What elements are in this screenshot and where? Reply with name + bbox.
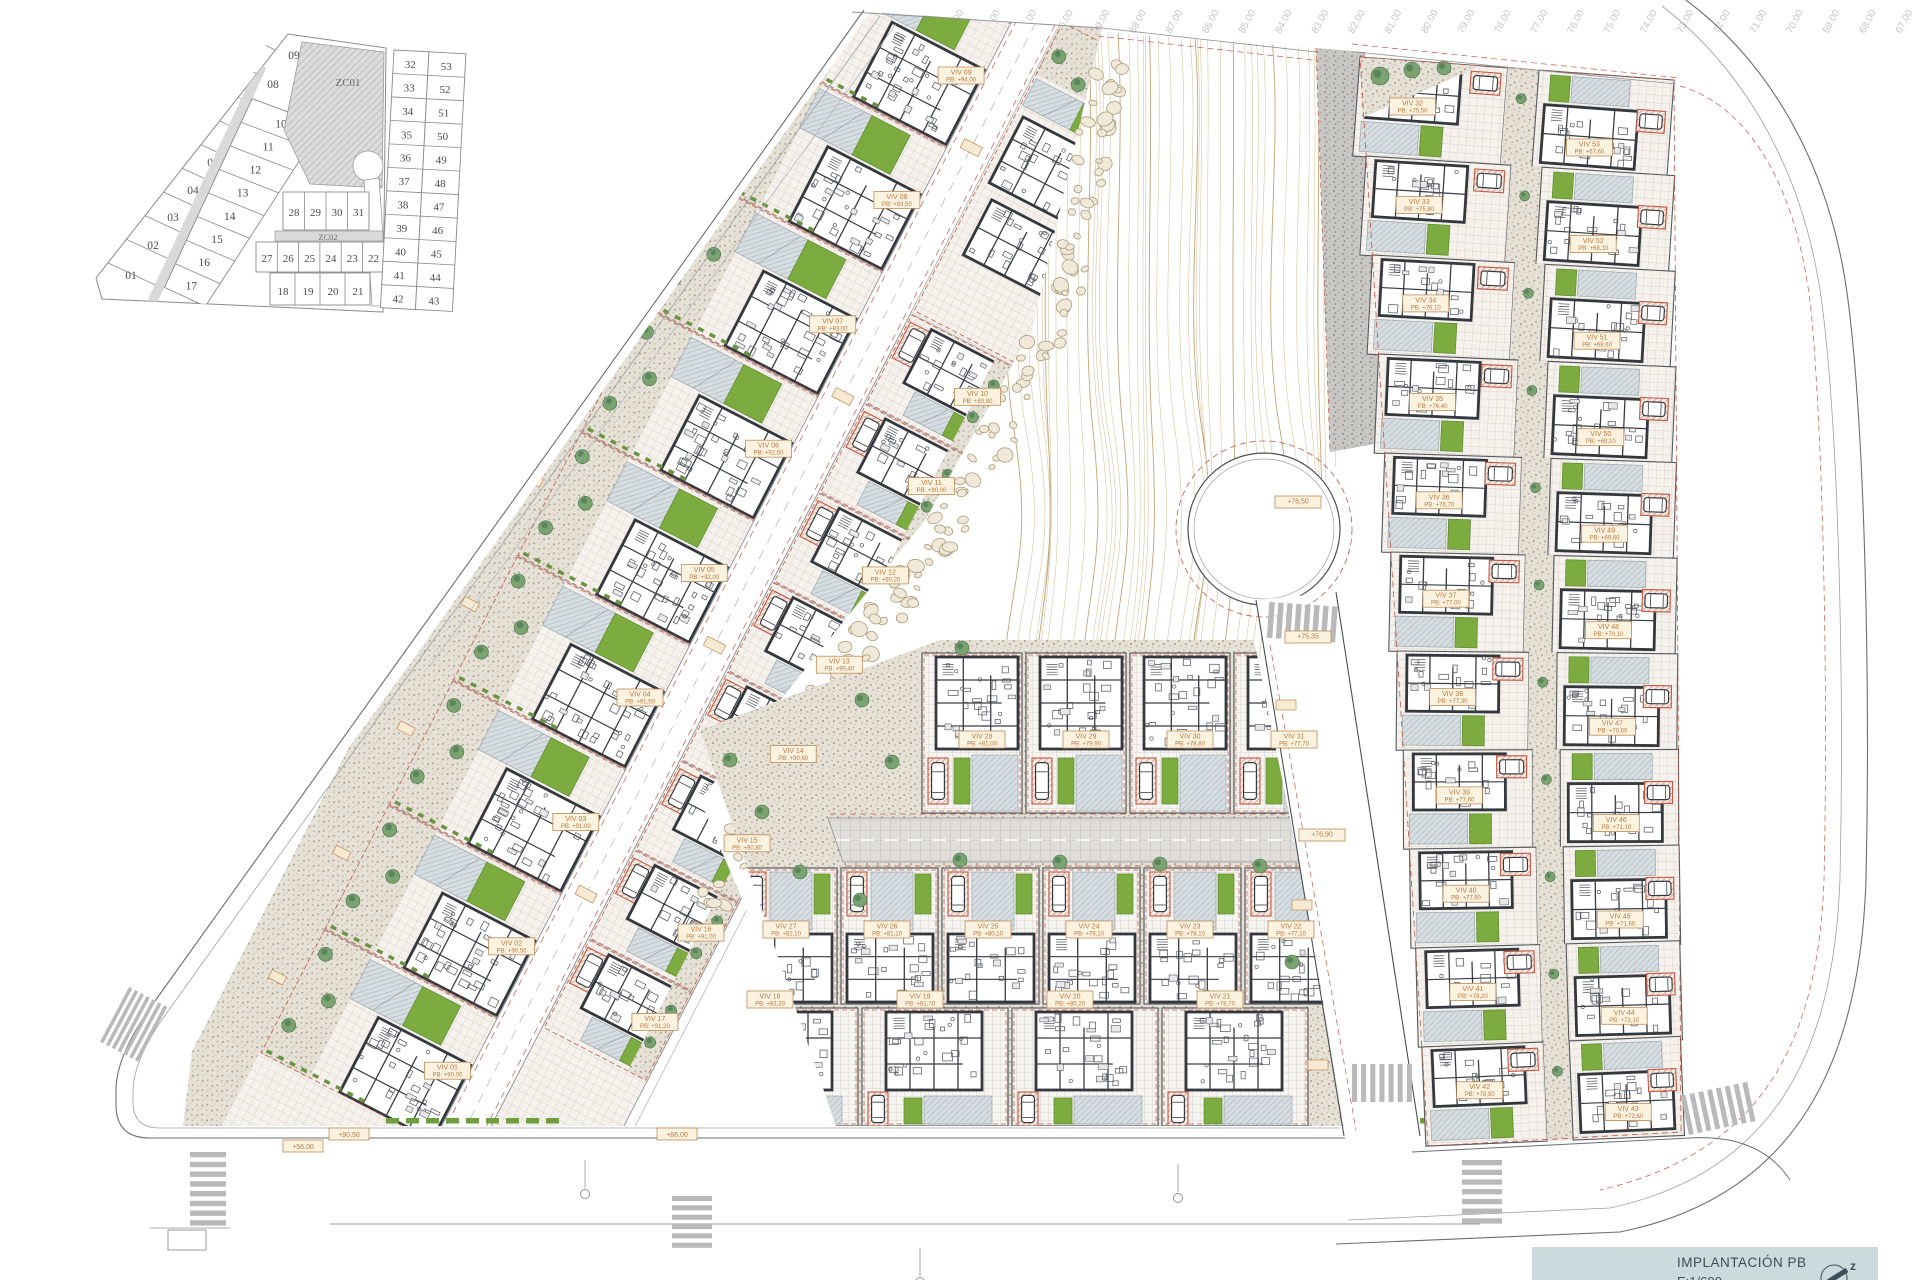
svg-text:PB: +68,10: PB: +68,10 <box>1578 246 1609 252</box>
svg-text:VIV 05: VIV 05 <box>694 567 715 574</box>
svg-text:45: 45 <box>431 249 443 261</box>
svg-text:PB: +90,00: PB: +90,00 <box>432 1073 463 1079</box>
svg-text:VIV 45: VIV 45 <box>1610 914 1631 921</box>
svg-text:+90,50: +90,50 <box>338 1132 360 1139</box>
svg-text:PB: +90,40: PB: +90,40 <box>824 667 855 673</box>
svg-text:VIV 08: VIV 08 <box>886 194 907 201</box>
svg-text:VIV 44: VIV 44 <box>1614 1010 1635 1017</box>
svg-text:VIV 31: VIV 31 <box>1283 734 1304 741</box>
svg-text:+76,90: +76,90 <box>1311 832 1333 839</box>
svg-text:VIV 15: VIV 15 <box>737 837 758 844</box>
svg-text:PB: +78,70: PB: +78,70 <box>1205 1002 1236 1008</box>
svg-text:PB: +70,60: PB: +70,60 <box>1597 729 1628 735</box>
svg-text:32: 32 <box>405 59 416 71</box>
svg-text:VIV 19: VIV 19 <box>909 994 930 1001</box>
svg-text:PB: +94,00: PB: +94,00 <box>946 78 977 84</box>
svg-text:51: 51 <box>438 108 449 120</box>
svg-text:13: 13 <box>237 188 249 200</box>
svg-text:VIV 47: VIV 47 <box>1602 721 1623 728</box>
svg-text:PB: +92,00: PB: +92,00 <box>689 575 720 581</box>
svg-text:PB: +68,60: PB: +68,60 <box>1582 343 1613 349</box>
svg-text:PB: +93,00: PB: +93,00 <box>818 326 849 332</box>
svg-text:PB: +76,40: PB: +76,40 <box>1418 404 1449 410</box>
svg-text:PB: +89,80: PB: +89,80 <box>963 399 994 405</box>
svg-text:VIV 36: VIV 36 <box>1429 494 1450 501</box>
svg-text:VIV 51: VIV 51 <box>1586 335 1607 342</box>
svg-text:19: 19 <box>303 286 315 298</box>
svg-text:VIV 33: VIV 33 <box>1409 199 1430 206</box>
svg-text:PB: +91,00: PB: +91,00 <box>686 935 717 941</box>
svg-text:39: 39 <box>396 223 408 235</box>
svg-text:11: 11 <box>263 142 274 154</box>
svg-text:VIV 16: VIV 16 <box>690 927 711 934</box>
svg-text:VIV 14: VIV 14 <box>783 748 804 755</box>
svg-text:PB: +79,90: PB: +79,90 <box>1071 742 1102 748</box>
svg-text:41: 41 <box>394 270 405 282</box>
svg-text:14: 14 <box>224 211 236 223</box>
svg-text:22: 22 <box>368 253 379 265</box>
svg-text:VIV 53: VIV 53 <box>1579 142 1600 149</box>
svg-text:VIV 22: VIV 22 <box>1280 924 1301 931</box>
svg-text:33: 33 <box>404 82 416 94</box>
svg-text:PB: +91,20: PB: +91,20 <box>640 1024 671 1030</box>
svg-text:38: 38 <box>397 200 409 212</box>
svg-text:E:1/600: E:1/600 <box>1677 1274 1722 1280</box>
svg-text:16: 16 <box>198 257 210 269</box>
svg-text:46: 46 <box>432 225 444 237</box>
svg-text:36: 36 <box>400 153 412 165</box>
svg-text:20: 20 <box>328 286 340 298</box>
svg-text:VIV 03: VIV 03 <box>565 816 586 823</box>
svg-text:VIV 10: VIV 10 <box>967 391 988 398</box>
svg-text:VIV 25: VIV 25 <box>977 924 998 931</box>
svg-text:24: 24 <box>325 253 337 265</box>
svg-text:28: 28 <box>289 207 301 219</box>
svg-text:53: 53 <box>441 61 453 73</box>
svg-text:PB: +93,50: PB: +93,50 <box>882 202 913 208</box>
svg-text:PB: +75,50: PB: +75,50 <box>1398 109 1429 115</box>
svg-text:PB: +72,10: PB: +72,10 <box>1609 1018 1640 1024</box>
svg-text:PB: +70,10: PB: +70,10 <box>1594 632 1625 638</box>
svg-text:PB: +79,10: PB: +79,10 <box>1074 932 1105 938</box>
svg-text:PB: +75,80: PB: +75,80 <box>1404 207 1435 213</box>
svg-text:VIV 37: VIV 37 <box>1435 593 1456 600</box>
svg-text:PB: +91,00: PB: +91,00 <box>561 824 592 830</box>
svg-text:PB: +77,00: PB: +77,00 <box>1431 601 1462 607</box>
svg-text:VIV 43: VIV 43 <box>1618 1106 1639 1113</box>
svg-text:VIV 21: VIV 21 <box>1209 994 1230 1001</box>
svg-text:48: 48 <box>435 178 447 190</box>
svg-text:VIV 49: VIV 49 <box>1594 528 1615 535</box>
svg-text:ZC02: ZC02 <box>318 232 337 242</box>
svg-text:PB: +91,50: PB: +91,50 <box>625 700 656 706</box>
svg-text:40: 40 <box>395 247 407 259</box>
svg-text:VIV 40: VIV 40 <box>1456 888 1477 895</box>
svg-text:VIV 30: VIV 30 <box>1179 734 1200 741</box>
svg-text:VIV 32: VIV 32 <box>1402 101 1423 108</box>
svg-text:VIV 48: VIV 48 <box>1598 624 1619 631</box>
svg-text:VIV 13: VIV 13 <box>829 659 850 666</box>
svg-text:VIV 24: VIV 24 <box>1078 924 1099 931</box>
svg-text:35: 35 <box>401 129 413 141</box>
svg-text:PB: +76,70: PB: +76,70 <box>1424 502 1455 508</box>
svg-text:+76,50: +76,50 <box>1287 499 1309 506</box>
svg-text:PB: +90,50: PB: +90,50 <box>497 948 528 954</box>
svg-text:PB: +78,10: PB: +78,10 <box>1175 932 1206 938</box>
svg-text:VIV 41: VIV 41 <box>1462 986 1483 993</box>
svg-text:01: 01 <box>125 270 137 282</box>
svg-text:+56,00: +56,00 <box>292 1144 314 1151</box>
svg-text:VIV 23: VIV 23 <box>1179 924 1200 931</box>
svg-text:PB: +71,60: PB: +71,60 <box>1605 922 1636 928</box>
svg-text:08: 08 <box>267 79 279 91</box>
svg-text:27: 27 <box>262 253 274 265</box>
svg-text:VIV 29: VIV 29 <box>1075 734 1096 741</box>
svg-text:PB: +81,10: PB: +81,10 <box>872 932 903 938</box>
svg-text:PB: +67,60: PB: +67,60 <box>1574 150 1605 156</box>
svg-text:17: 17 <box>186 280 198 292</box>
svg-text:VIV 26: VIV 26 <box>876 924 897 931</box>
svg-text:PB: +81,70: PB: +81,70 <box>905 1002 936 1008</box>
svg-text:50: 50 <box>437 131 449 143</box>
svg-text:47: 47 <box>433 202 445 214</box>
svg-text:30: 30 <box>332 207 344 219</box>
svg-text:VIV 09: VIV 09 <box>951 70 972 77</box>
svg-text:PB: +69,60: PB: +69,60 <box>1590 536 1621 542</box>
svg-text:VIV 18: VIV 18 <box>759 994 780 1001</box>
svg-text:PB: +90,20: PB: +90,20 <box>870 577 901 583</box>
svg-text:PB: +77,30: PB: +77,30 <box>1438 699 1469 705</box>
svg-text:25: 25 <box>304 253 316 265</box>
svg-text:VIV 39: VIV 39 <box>1449 789 1470 796</box>
svg-text:IMPLANTACIÓN PB: IMPLANTACIÓN PB <box>1677 1255 1807 1270</box>
svg-text:z: z <box>1850 1259 1856 1273</box>
svg-text:52: 52 <box>440 84 451 96</box>
svg-text:VIV 04: VIV 04 <box>629 692 650 699</box>
svg-text:03: 03 <box>167 212 179 224</box>
svg-text:PB: +90,60: PB: +90,60 <box>778 756 809 762</box>
svg-text:VIV 06: VIV 06 <box>758 443 779 450</box>
svg-text:PB: +90,00: PB: +90,00 <box>917 488 948 494</box>
svg-text:26: 26 <box>283 253 295 265</box>
svg-text:VIV 07: VIV 07 <box>822 318 843 325</box>
svg-text:29: 29 <box>310 207 322 219</box>
svg-text:PB: +77,10: PB: +77,10 <box>1276 932 1307 938</box>
svg-text:PB: +80,10: PB: +80,10 <box>973 932 1004 938</box>
svg-text:VIV 50: VIV 50 <box>1590 431 1611 438</box>
svg-text:PB: +92,50: PB: +92,50 <box>754 451 785 457</box>
svg-text:PB: +83,20: PB: +83,20 <box>755 1002 786 1008</box>
svg-text:PB: +69,10: PB: +69,10 <box>1586 439 1617 445</box>
svg-text:PB: +82,10: PB: +82,10 <box>771 932 802 938</box>
svg-text:34: 34 <box>402 106 414 118</box>
svg-text:15: 15 <box>211 234 223 246</box>
svg-text:PB: +78,20: PB: +78,20 <box>1458 994 1489 1000</box>
svg-text:VIV 34: VIV 34 <box>1415 297 1436 304</box>
svg-text:VIV 02: VIV 02 <box>501 940 522 947</box>
svg-text:+75,35: +75,35 <box>1297 634 1319 641</box>
svg-text:ZC01: ZC01 <box>335 77 360 89</box>
svg-text:PB: +81,00: PB: +81,00 <box>967 742 998 748</box>
svg-text:12: 12 <box>250 165 262 177</box>
svg-text:VIV 27: VIV 27 <box>775 924 796 931</box>
svg-text:44: 44 <box>430 272 442 284</box>
svg-text:VIV 01: VIV 01 <box>437 1065 458 1072</box>
svg-text:37: 37 <box>399 176 411 188</box>
svg-text:PB: +71,10: PB: +71,10 <box>1601 825 1632 831</box>
svg-text:PB: +77,70: PB: +77,70 <box>1279 742 1310 748</box>
svg-text:PB: +77,60: PB: +77,60 <box>1444 797 1475 803</box>
svg-text:VIV 11: VIV 11 <box>921 480 942 487</box>
svg-text:49: 49 <box>436 155 448 167</box>
svg-text:VIV 20: VIV 20 <box>1059 994 1080 1001</box>
svg-text:VIV 28: VIV 28 <box>971 734 992 741</box>
svg-text:VIV 12: VIV 12 <box>875 569 896 576</box>
svg-text:PB: +72,60: PB: +72,60 <box>1613 1114 1644 1120</box>
svg-text:PB: +90,80: PB: +90,80 <box>732 845 763 851</box>
svg-text:43: 43 <box>428 295 440 307</box>
svg-text:VIV 46: VIV 46 <box>1606 817 1627 824</box>
svg-text:VIV 35: VIV 35 <box>1422 396 1443 403</box>
svg-text:PB: +80,20: PB: +80,20 <box>1055 1002 1086 1008</box>
svg-text:18: 18 <box>278 286 290 298</box>
svg-text:PB: +78,80: PB: +78,80 <box>1175 742 1206 748</box>
svg-text:02: 02 <box>147 240 159 252</box>
svg-text:42: 42 <box>393 294 404 306</box>
svg-text:VIV 38: VIV 38 <box>1442 691 1463 698</box>
svg-text:PB: +76,10: PB: +76,10 <box>1411 305 1442 311</box>
svg-text:VIV 42: VIV 42 <box>1469 1084 1490 1091</box>
svg-text:VIV 17: VIV 17 <box>644 1016 665 1023</box>
svg-text:23: 23 <box>347 253 359 265</box>
svg-text:+86,00: +86,00 <box>666 1132 688 1139</box>
svg-text:21: 21 <box>353 286 364 298</box>
svg-text:VIV 52: VIV 52 <box>1583 238 1604 245</box>
svg-text:PB: +78,50: PB: +78,50 <box>1465 1092 1496 1098</box>
svg-text:PB: +77,90: PB: +77,90 <box>1451 896 1482 902</box>
svg-text:31: 31 <box>353 207 364 219</box>
